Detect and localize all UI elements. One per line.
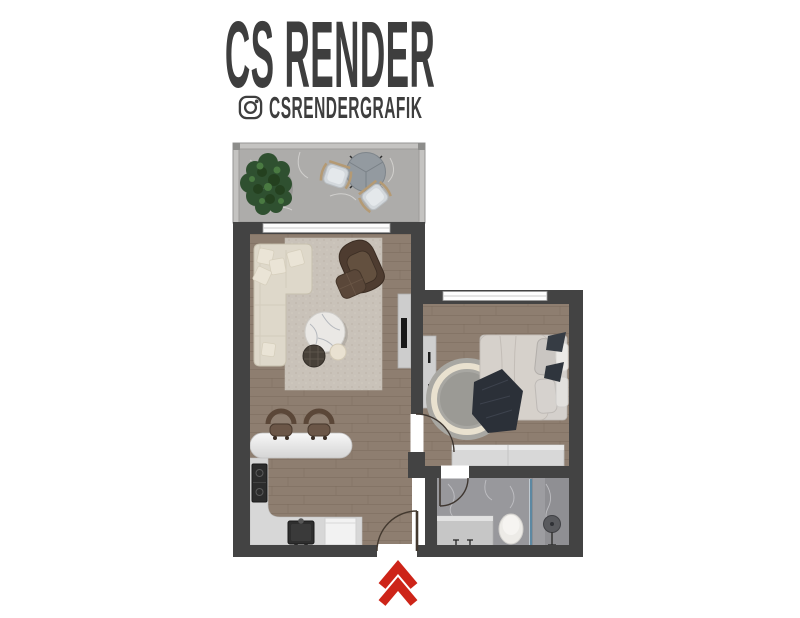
wall-west	[233, 222, 250, 557]
dishwasher	[325, 518, 356, 545]
tv-icon	[401, 318, 407, 348]
wall-east	[569, 290, 583, 557]
pouf-dark	[303, 345, 325, 367]
wall-south-left	[233, 545, 377, 557]
wall-divider	[411, 304, 423, 414]
bed	[472, 332, 568, 433]
kitchen-island	[250, 433, 352, 458]
wall-south-right	[417, 545, 583, 557]
vanity	[437, 516, 493, 546]
entrance-arrows	[382, 567, 414, 603]
toilet	[499, 514, 523, 544]
bathroom-door-opening	[441, 466, 469, 479]
dresser	[452, 445, 564, 466]
poster-page: CS RENDER CSRENDERGRAFIK	[0, 0, 800, 618]
floorplan	[0, 0, 800, 618]
sink	[288, 518, 314, 548]
bedroom-door-opening	[411, 414, 424, 452]
wall-bathroom-north	[408, 466, 569, 478]
tv-console-living	[398, 294, 411, 368]
pouf-cream	[330, 344, 346, 360]
balcony	[233, 143, 425, 223]
stove	[252, 464, 267, 502]
entrance-door-opening	[377, 544, 417, 558]
